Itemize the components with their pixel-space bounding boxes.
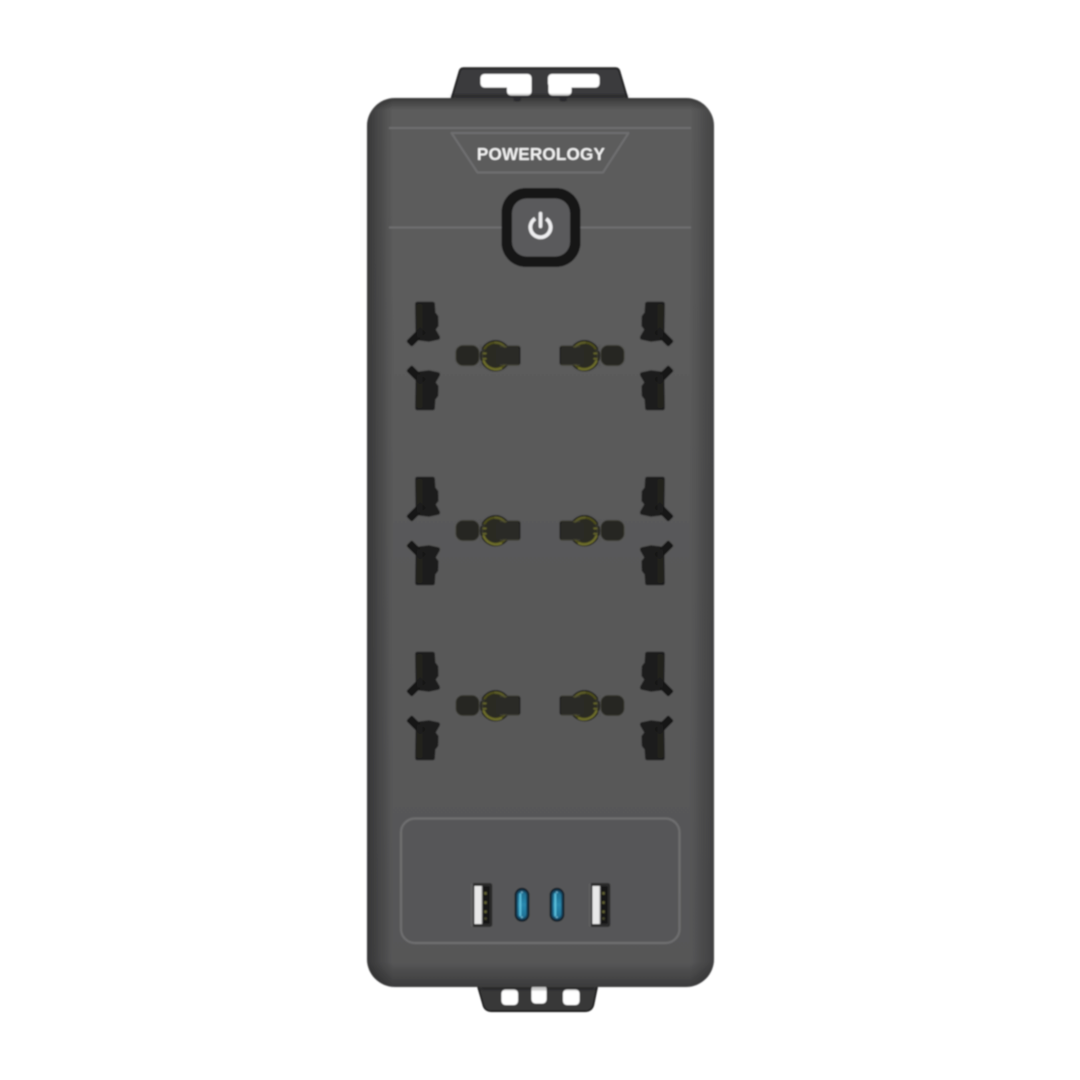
- svg-text:POWEROLOGY: POWEROLOGY: [477, 145, 606, 164]
